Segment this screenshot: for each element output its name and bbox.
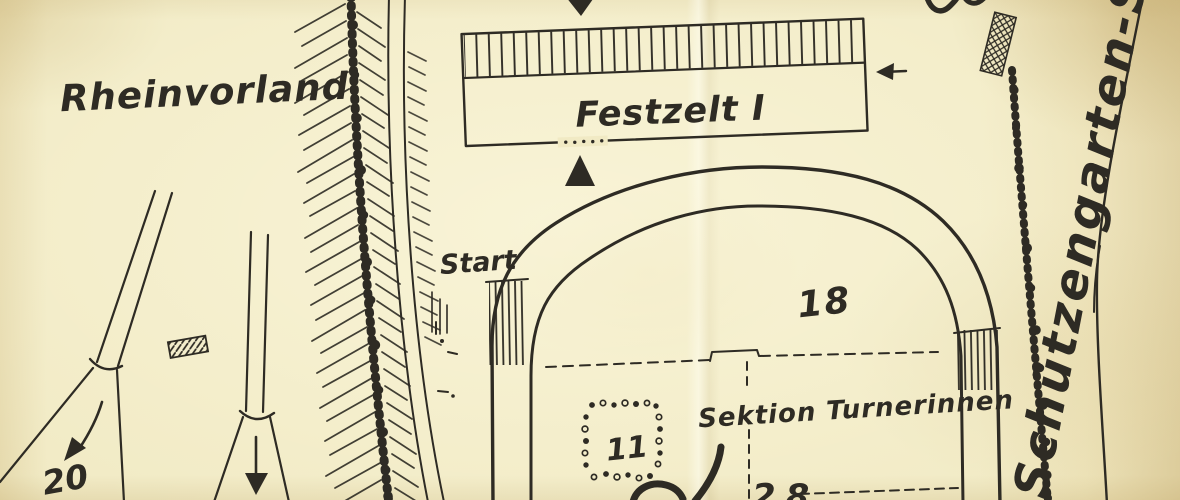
footpath-ticks: [408, 52, 441, 345]
exit-path-right: [214, 232, 289, 500]
top-script-partial: [926, 0, 986, 11]
zone-11-label: 11: [604, 429, 649, 468]
arrow-down-icon: [245, 437, 268, 495]
running-track: [486, 167, 1000, 500]
rheinvorland-label: Rheinvorland: [59, 65, 350, 121]
zone-20-label: 20: [39, 456, 91, 500]
start-label: Start: [439, 245, 519, 281]
path-mouth-mark: [240, 411, 274, 419]
festzelt-building: Festzelt I: [462, 19, 868, 151]
finish-block: [954, 328, 1000, 390]
arrow-up-icon: [565, 155, 595, 186]
arrow-down-left-icon: [64, 402, 102, 461]
zone-28-label: 28: [752, 477, 819, 500]
boundary-notch: [710, 350, 759, 361]
site-plan-svg: Festzelt I Start: [0, 0, 1180, 500]
zone-18-label: 18: [795, 280, 853, 326]
festzelt-label: Festzelt I: [575, 88, 767, 135]
arrow-down-icon: [562, 0, 598, 16]
sektion-turnerinnen-label: Sektion Turnerinnen: [697, 385, 1014, 434]
start-block: [486, 279, 528, 365]
path-mouth-mark: [90, 359, 122, 369]
small-stand-symbol: [168, 336, 208, 358]
exit-path-left: [0, 191, 172, 500]
arrow-left-icon: [876, 63, 906, 80]
festzelt-hatch-band: [464, 20, 863, 77]
map-canvas: Festzelt I Start: [0, 0, 1180, 500]
